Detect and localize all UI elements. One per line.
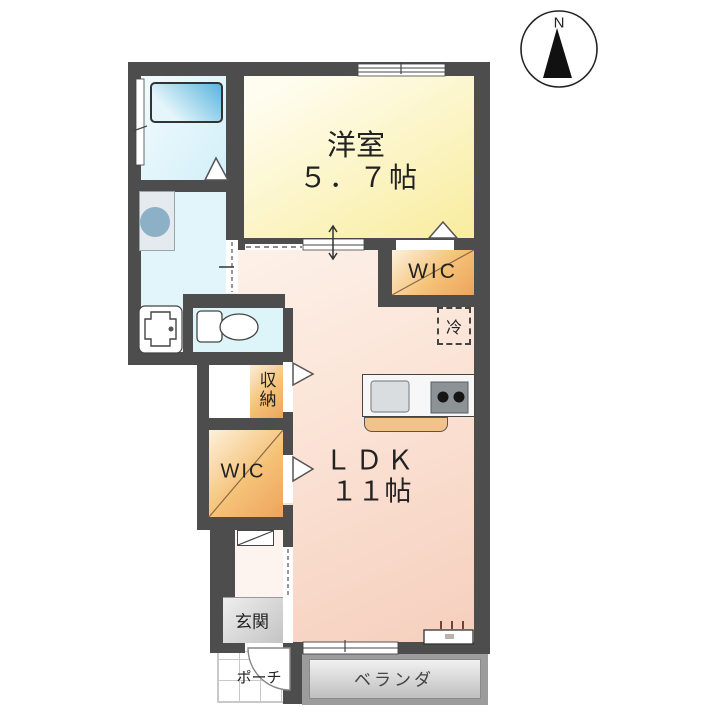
wic-upper-label: WIC — [408, 260, 458, 284]
wall-segment — [474, 62, 490, 654]
porch-label: ポーチ — [236, 667, 281, 688]
kitchen-counter — [362, 374, 475, 417]
toilet-room — [193, 308, 283, 354]
pocket-door-washroom — [226, 240, 238, 293]
wall-segment — [378, 295, 490, 307]
wall-segment — [197, 352, 209, 530]
bathtub — [150, 82, 223, 123]
fridge-label: 冷 — [446, 314, 462, 338]
wall-segment — [128, 62, 490, 76]
storage-label: 収納 — [254, 371, 279, 409]
washing-machine-pan — [139, 191, 175, 251]
wall-segment — [226, 62, 244, 250]
floor-plan: 洋室 ５．７帖 WIC 冷 収納 ＬＤＫ １１帖 WIC 玄関 ポーチ ベランダ… — [0, 0, 720, 720]
compass-needle — [543, 28, 572, 78]
door-wic-upper — [396, 240, 454, 250]
entrance-label: 玄関 — [235, 608, 269, 633]
wall-segment — [283, 308, 293, 362]
wall-segment — [183, 300, 193, 356]
opening-entrance-ldk — [283, 597, 293, 643]
wall-segment — [197, 418, 293, 430]
wall-segment — [183, 294, 285, 308]
wall-segment — [128, 352, 293, 365]
wall-segment — [210, 517, 235, 597]
door-wic-lower — [283, 455, 293, 503]
shoe-cabinet — [237, 530, 274, 546]
opening-western-ldk — [245, 244, 303, 250]
western-room-size: ５．７帖 — [299, 156, 419, 196]
veranda-label: ベランダ — [354, 666, 434, 691]
washroom-lower — [141, 294, 183, 354]
door-hallway-ldk — [283, 547, 293, 597]
kitchen-counter-edge — [364, 417, 448, 432]
wall-segment — [293, 642, 475, 654]
wall-segment — [210, 643, 245, 653]
wall-segment — [378, 238, 392, 302]
ldk-size: １１帖 — [331, 470, 412, 509]
compass-north-label: N — [554, 15, 565, 32]
wic-lower-label: WIC — [221, 461, 266, 484]
door-storage — [283, 362, 293, 412]
wall-segment — [283, 505, 293, 547]
wall-segment — [283, 412, 293, 455]
